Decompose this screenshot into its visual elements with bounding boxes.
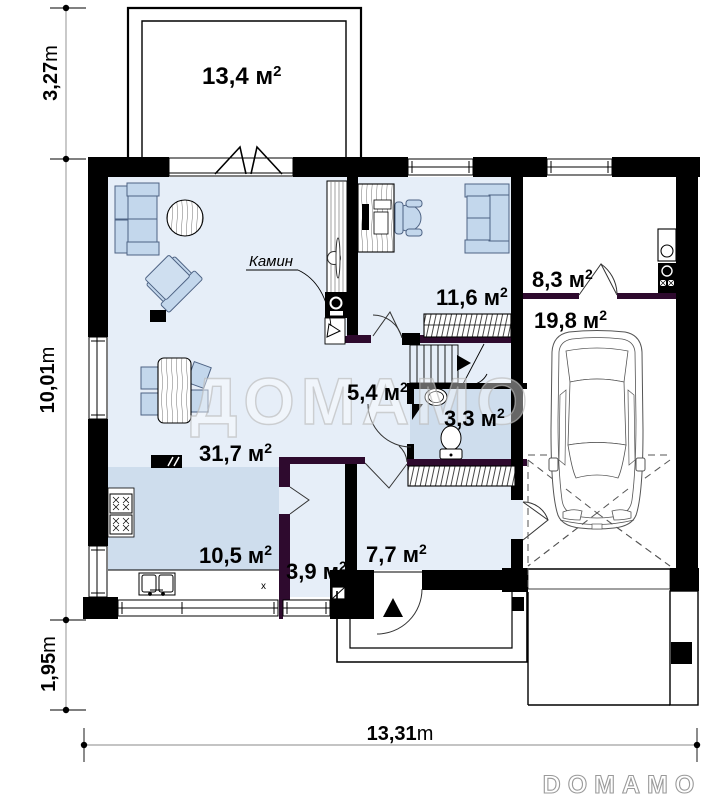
svg-text:x: x — [261, 581, 266, 592]
svg-text:10,01m: 10,01m — [37, 347, 59, 414]
svg-text:1,95m: 1,95m — [38, 636, 60, 692]
svg-text:7,7 м2: 7,7 м2 — [366, 541, 427, 567]
svg-text:DOMAMO: DOMAMO — [543, 771, 702, 799]
svg-text:3,27m: 3,27m — [40, 45, 62, 101]
svg-text:13,4 м2: 13,4 м2 — [202, 63, 281, 90]
svg-text:13,31m: 13,31m — [367, 723, 434, 745]
svg-text:3,3 м2: 3,3 м2 — [444, 405, 505, 431]
svg-text:Камин: Камин — [249, 253, 293, 270]
svg-text:10,5 м2: 10,5 м2 — [199, 542, 272, 568]
svg-text:19,8 м2: 19,8 м2 — [534, 307, 607, 333]
svg-text:31,7 м2: 31,7 м2 — [199, 440, 272, 466]
svg-text:5,4 м2: 5,4 м2 — [347, 379, 408, 405]
svg-text:11,6 м2: 11,6 м2 — [436, 284, 508, 310]
svg-text:8,3 м2: 8,3 м2 — [532, 266, 593, 292]
svg-text:3,9 м2: 3,9 м2 — [286, 558, 347, 584]
